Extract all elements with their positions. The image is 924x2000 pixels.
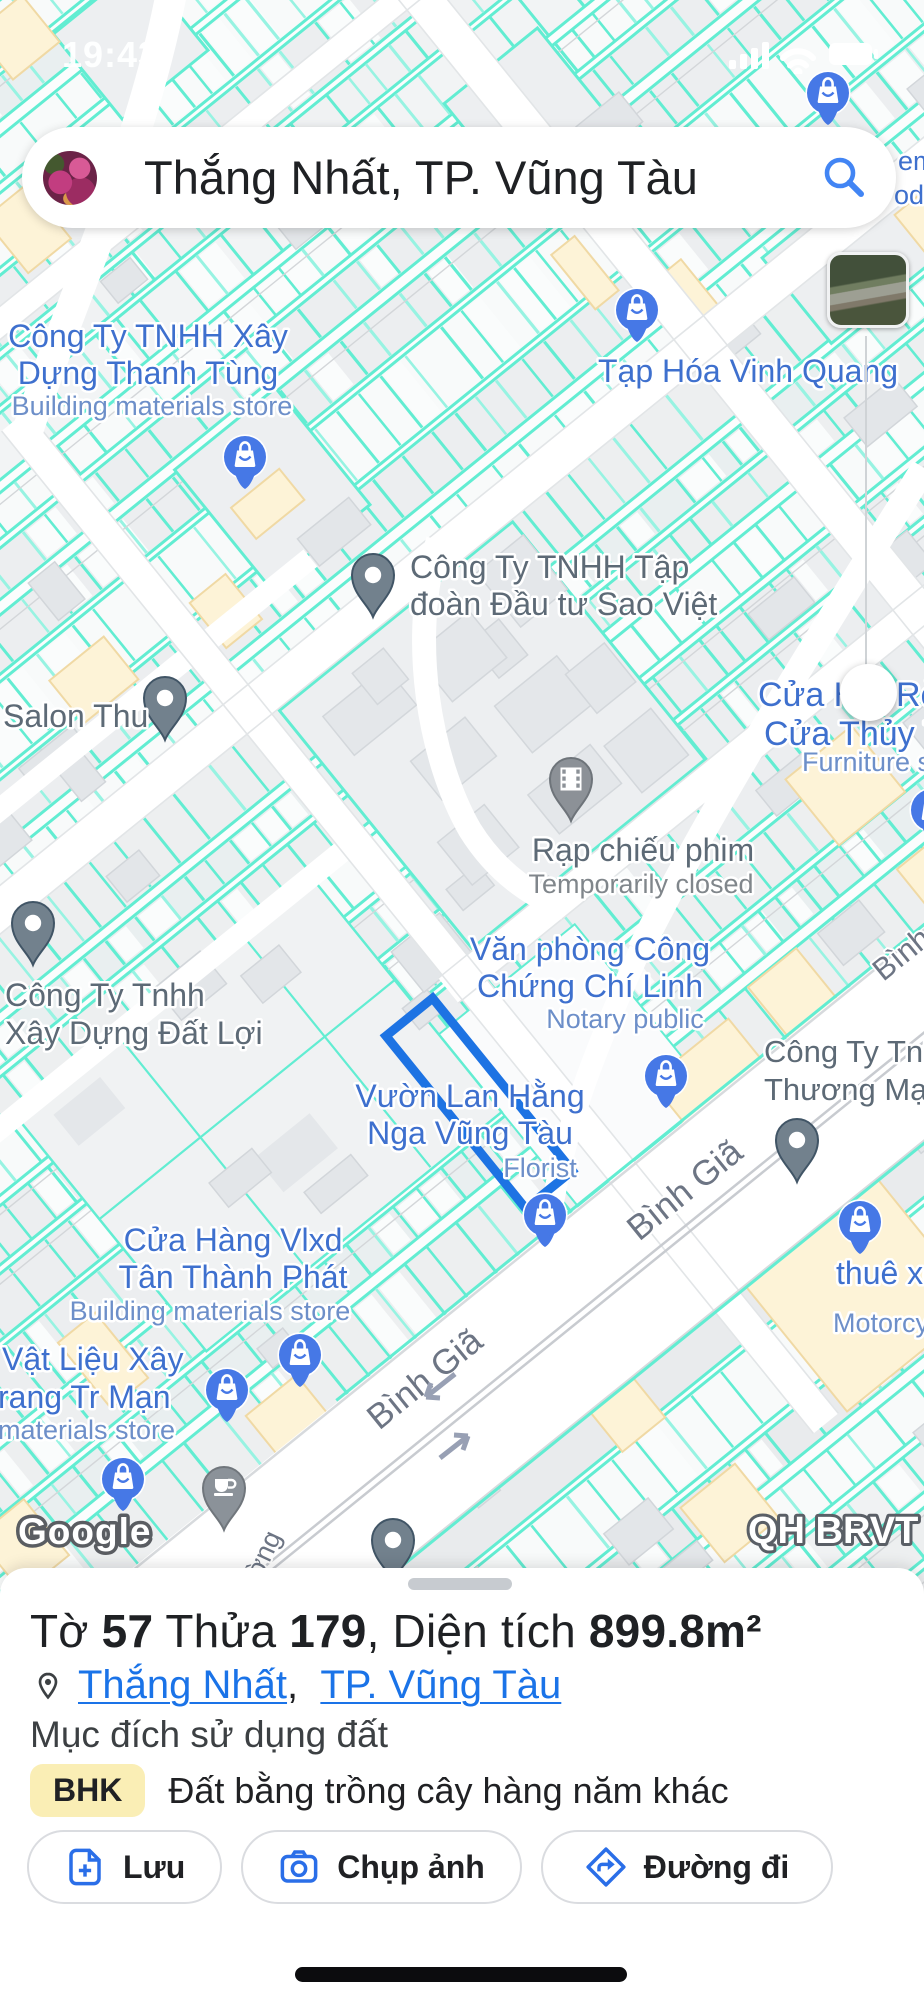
- svg-text:Vật Liệu Xây: Vật Liệu Xây: [2, 1341, 183, 1377]
- svg-text:Building materials store: Building materials store: [12, 391, 293, 421]
- svg-text:em: em: [898, 146, 924, 176]
- svg-text:Nga Vũng Tàu: Nga Vũng Tàu: [367, 1115, 573, 1151]
- svg-text:Florist: Florist: [503, 1153, 577, 1183]
- svg-text:QH BRVT: QH BRVT: [748, 1510, 918, 1552]
- svg-text:Motorcy: Motorcy: [833, 1308, 924, 1338]
- svg-text:Temporarily closed: Temporarily closed: [528, 869, 753, 899]
- svg-text:Furniture sto: Furniture sto: [802, 747, 924, 777]
- svg-text:Chứng Chí Linh: Chứng Chí Linh: [477, 968, 703, 1004]
- svg-text:Thương Mại: Thương Mại: [764, 1072, 924, 1107]
- svg-text:Tân Thành Phát: Tân Thành Phát: [119, 1259, 348, 1295]
- svg-text:Xây Dựng Đất Lợi: Xây Dựng Đất Lợi: [5, 1015, 263, 1051]
- svg-text:Công Ty Tnh: Công Ty Tnh: [764, 1034, 924, 1069]
- svg-text:Rè: Rè: [896, 676, 924, 714]
- svg-text:Công Ty Tnhh: Công Ty Tnhh: [5, 977, 205, 1013]
- svg-text:Google: Google: [18, 1511, 151, 1552]
- svg-text:Văn phòng Công: Văn phòng Công: [470, 931, 710, 967]
- svg-text:Dựng Thanh Tùng: Dựng Thanh Tùng: [18, 355, 278, 391]
- svg-text:Building materials store: Building materials store: [70, 1296, 351, 1326]
- svg-text:Công Ty TNHH Xây: Công Ty TNHH Xây: [8, 318, 288, 354]
- svg-text:Rạp chiếu phim: Rạp chiếu phim: [532, 832, 754, 868]
- svg-text:đoàn Đầu tư Sao Việt: đoàn Đầu tư Sao Việt: [410, 586, 717, 622]
- svg-text:od: od: [894, 180, 924, 210]
- svg-text:materials store: materials store: [0, 1415, 175, 1445]
- svg-text:rang Tr Mạn: rang Tr Mạn: [0, 1379, 171, 1415]
- svg-text:Vườn Lan Hằng: Vườn Lan Hằng: [355, 1078, 584, 1114]
- svg-text:Công Ty TNHH Tập: Công Ty TNHH Tập: [410, 549, 689, 585]
- svg-text:Notary public: Notary public: [546, 1004, 704, 1034]
- svg-text:Tạp Hóa Vinh Quang: Tạp Hóa Vinh Quang: [598, 353, 898, 389]
- svg-text:Salon Thu: Salon Thu: [3, 698, 148, 734]
- svg-text:Cửa Hàng Vlxd: Cửa Hàng Vlxd: [124, 1222, 343, 1258]
- svg-text:thuê xe: thuê xe: [836, 1255, 924, 1291]
